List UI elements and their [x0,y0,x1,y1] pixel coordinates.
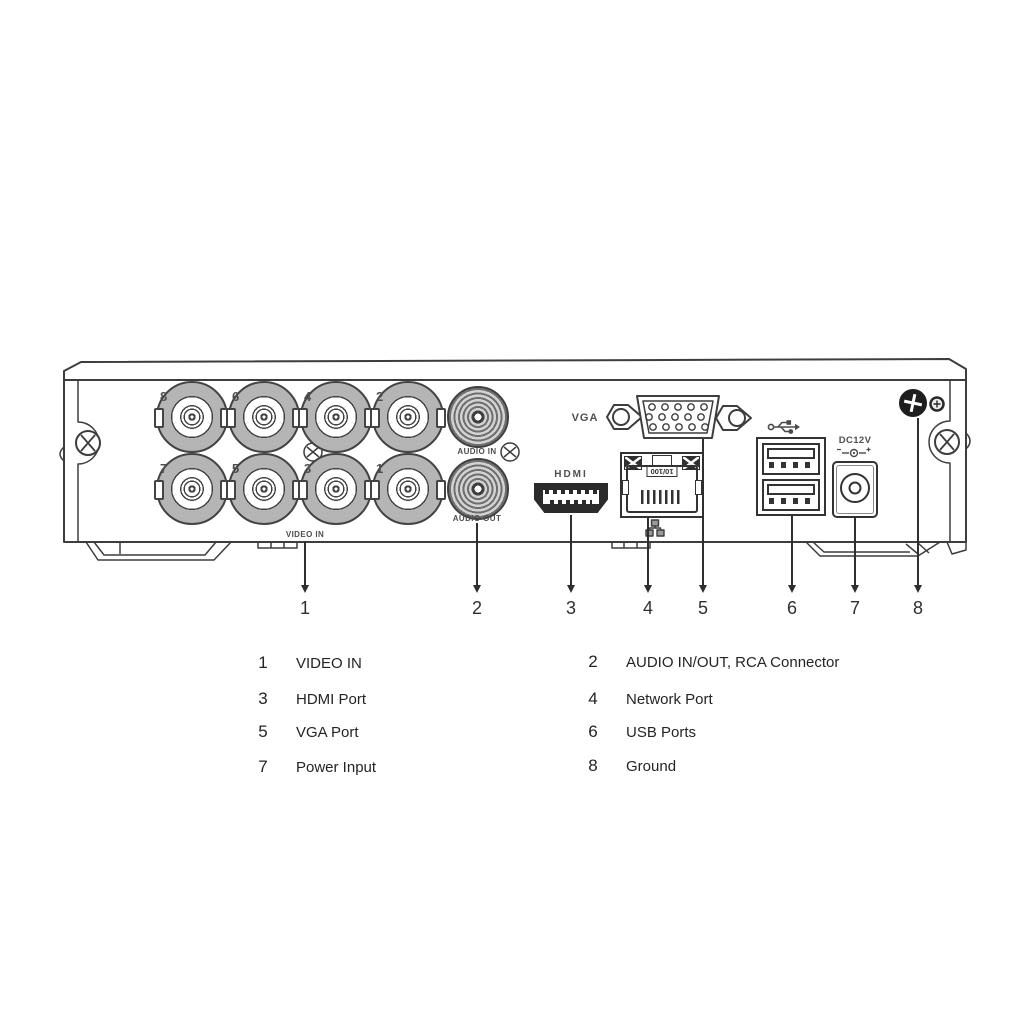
small-screw-icon [931,398,944,411]
rj45-pins [641,490,683,504]
left-foot-inner [94,542,216,555]
arrow-down-icon [851,585,859,593]
leader-line [304,541,306,585]
arrow-down-icon [788,585,796,593]
usb-contacts [769,462,813,468]
network-speed-marking: 10/100 [647,466,678,477]
audio-out-connector [447,458,509,520]
left-mounting-screw-icon [76,431,100,455]
bnc-connector-4: 4 [300,381,372,453]
vga-label: VGA [565,412,605,424]
ground-screw-icon [900,390,926,416]
callout-2: 2 [472,523,482,619]
callout-1: 1 [300,541,310,619]
bnc-number: 4 [304,389,311,404]
leader-line [702,439,704,585]
callout-number-2: 2 [472,598,482,619]
bnc-bayonet-tab [370,480,380,500]
callout-7: 7 [850,517,860,619]
callout-3: 3 [566,515,576,619]
network-port: 10/100 [620,452,704,518]
leader-line [917,418,919,585]
bnc-bayonet-tab [370,408,380,428]
bnc-bayonet-tab [436,408,446,428]
rj45-latch [622,480,629,495]
arrow-down-icon [644,585,652,593]
leader-line [791,514,793,585]
usb-ports [756,437,826,516]
arrow-down-icon [301,585,309,593]
audio-in-label: AUDIO IN [442,447,512,456]
audio-out-label: AUDIO OUT [441,514,513,523]
arrow-down-icon [914,585,922,593]
callout-number-8: 8 [913,598,923,619]
bnc-connector-1: 1 [372,453,444,525]
callout-number-5: 5 [698,598,708,619]
bnc-number: 5 [232,461,239,476]
bnc-connector-7: 7 [156,453,228,525]
bnc-number: 7 [160,461,167,476]
arrow-down-icon [699,585,707,593]
callout-4: 4 [643,518,653,619]
usb-tongue [767,448,815,459]
power-jack-pin [849,482,862,495]
bnc-bayonet-tab [154,408,164,428]
video-in-label: VIDEO IN [268,530,342,539]
bnc-number: 8 [160,389,167,404]
arrow-down-icon [473,585,481,593]
hdmi-logo: HDMI [536,469,606,480]
leader-line [647,518,649,585]
callout-number-3: 3 [566,598,576,619]
bnc-bayonet-tab [298,480,308,500]
bnc-bayonet-tab [436,480,446,500]
bnc-number: 6 [232,389,239,404]
chassis-top-edge [64,359,966,380]
callout-number-6: 6 [787,598,797,619]
bottom-right-corner [947,542,966,554]
leader-line [854,517,856,585]
bottom-feet [86,542,966,560]
bnc-number: 2 [376,389,383,404]
power-jack-barrel [840,473,870,503]
hdmi-slot [543,490,599,504]
usb-tongue [767,484,815,495]
audio-in-connector [447,386,509,448]
usb-port-1 [762,443,820,475]
bnc-connector-6: 6 [228,381,300,453]
usb-port-2 [762,479,820,511]
callout-6: 6 [787,514,797,619]
bnc-number: 3 [304,461,311,476]
bnc-bayonet-tab [226,480,236,500]
right-foot-inner [813,542,910,552]
leader-line [476,523,478,585]
callout-number-1: 1 [300,598,310,619]
usb-contacts [769,498,813,504]
bnc-bayonet-tab [226,408,236,428]
leader-line [570,515,572,585]
bnc-bayonet-tab [298,408,308,428]
power-input-jack [832,461,878,518]
callout-8: 8 [913,418,923,619]
callout-number-7: 7 [850,598,860,619]
bnc-connector-5: 5 [228,453,300,525]
hdmi-port [534,483,608,513]
bnc-number: 1 [376,461,383,476]
bnc-connector-3: 3 [300,453,372,525]
bnc-connector-2: 2 [372,381,444,453]
callout-5: 5 [698,439,708,619]
rear-panel-diagram: 8 6 4 2 7 5 3 1 VIDEO IN AUDIO IN AUDIO … [0,0,1024,1024]
bnc-bayonet-tab [154,480,164,500]
arrow-down-icon [567,585,575,593]
right-mounting-screw-icon [935,430,959,454]
callout-number-4: 4 [643,598,653,619]
dc12v-label: DC12V [833,435,877,446]
bnc-connector-8: 8 [156,381,228,453]
